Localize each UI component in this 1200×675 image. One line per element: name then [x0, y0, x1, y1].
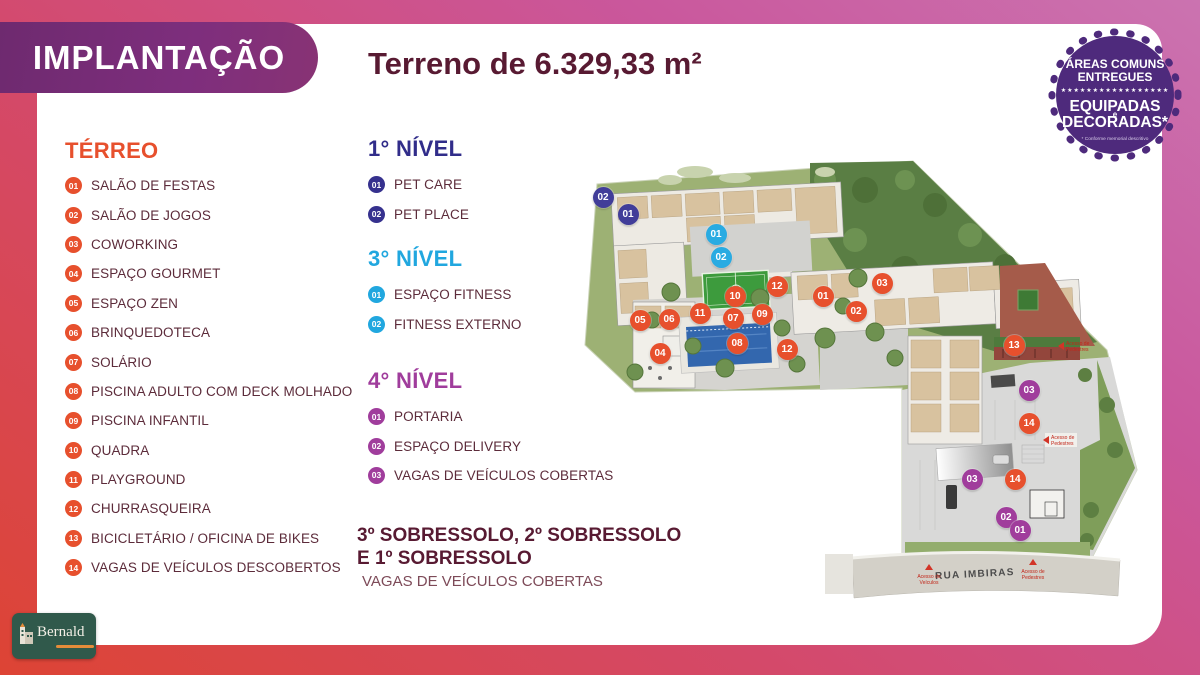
plan-marker-terreo-08: 08: [727, 333, 748, 354]
item-number-badge: 03: [368, 467, 385, 484]
seal-stars-icon: ★★★★★★★★★★★★★★★★★: [1061, 87, 1169, 94]
item-label: VAGAS DE VEÍCULOS COBERTAS: [394, 468, 613, 483]
item-label: PORTARIA: [394, 409, 463, 424]
item-label: ESPAÇO DELIVERY: [394, 439, 521, 454]
legend-item: 04ESPAÇO GOURMET: [65, 259, 352, 288]
sobressolo-title: 3º SOBRESSOLO, 2º SOBRESSOLO E 1º SOBRES…: [357, 524, 681, 570]
plan-marker-terreo-13: 13: [1004, 335, 1025, 356]
item-label: BICICLETÁRIO / OFICINA DE BIKES: [91, 531, 319, 546]
plan-marker-terreo-04: 04: [650, 343, 671, 364]
legend-item: 01ESPAÇO FITNESS: [368, 280, 522, 309]
sobressolo-title-line2: E 1º SOBRESSOLO: [357, 547, 681, 570]
legend-nivel4-title: 4° NÍVEL: [368, 368, 613, 394]
item-number-badge: 01: [368, 286, 385, 303]
plan-marker-terreo-03: 03: [872, 273, 893, 294]
sobressolo-note: VAGAS DE VEÍCULOS COBERTAS: [362, 573, 603, 590]
item-number-badge: 12: [65, 500, 82, 517]
legend-item: 09PISCINA INFANTIL: [65, 406, 352, 435]
plan-marker-terreo-05: 05: [630, 310, 651, 331]
plan-markers-layer: 0201010212100301021109070506080412130314…: [575, 150, 1140, 647]
brand-tagline: [56, 645, 94, 648]
legend-item: 14VAGAS DE VEÍCULOS DESCOBERTOS: [65, 553, 352, 582]
plan-marker-terreo-14: 14: [1005, 469, 1026, 490]
legend-item: 02FITNESS EXTERNO: [368, 309, 522, 338]
seal-line2: ENTREGUES: [1078, 70, 1153, 84]
item-number-badge: 08: [65, 383, 82, 400]
item-label: VAGAS DE VEÍCULOS DESCOBERTOS: [91, 560, 341, 575]
item-label: QUADRA: [91, 443, 149, 458]
brand-name: Bernald: [37, 624, 84, 641]
item-label: PLAYGROUND: [91, 472, 186, 487]
plan-marker-terreo-01: 01: [813, 286, 834, 307]
legend-terreo-title: TÉRREO: [65, 138, 352, 164]
plan-marker-terreo-09: 09: [752, 304, 773, 325]
brand-logo: Bernald: [12, 613, 96, 659]
legend-nivel3-title: 3° NÍVEL: [368, 246, 522, 272]
item-label: FITNESS EXTERNO: [394, 317, 522, 332]
plan-marker-nivel3-02: 02: [711, 247, 732, 268]
legend-nivel1-title: 1° NÍVEL: [368, 136, 469, 162]
legend-item: 01PORTARIA: [368, 402, 613, 431]
item-number-badge: 10: [65, 442, 82, 459]
legend-nivel4: 4° NÍVEL 01PORTARIA 02ESPAÇO DELIVERY 03…: [368, 368, 613, 490]
site-plan: RUA IMBIRAS Acesso de Veículos Acesso de…: [575, 150, 1140, 647]
page-background: RUA IMBIRAS Acesso de Veículos Acesso de…: [0, 0, 1200, 675]
legend-item: 02ESPAÇO DELIVERY: [368, 431, 613, 460]
item-label: ESPAÇO GOURMET: [91, 266, 220, 281]
item-label: BRINQUEDOTECA: [91, 325, 210, 340]
plan-marker-terreo-10: 10: [725, 286, 746, 307]
item-number-badge: 01: [65, 177, 82, 194]
plan-marker-nivel3-01: 01: [706, 224, 727, 245]
seal-line4: DECORADAS*: [1062, 114, 1169, 131]
item-number-badge: 14: [65, 559, 82, 576]
sobressolo-title-line1: 3º SOBRESSOLO, 2º SOBRESSOLO: [357, 524, 681, 547]
item-label: PET CARE: [394, 177, 462, 192]
item-number-badge: 01: [368, 408, 385, 425]
plan-marker-nivel4-03: 03: [962, 469, 983, 490]
seal-footnote: * Conforme memorial descritivo: [1082, 136, 1149, 142]
item-number-badge: 02: [368, 438, 385, 455]
item-number-badge: 07: [65, 354, 82, 371]
item-label: PISCINA INFANTIL: [91, 413, 209, 428]
item-number-badge: 13: [65, 530, 82, 547]
plan-marker-nivel4-01: 01: [1010, 520, 1031, 541]
item-number-badge: 02: [368, 316, 385, 333]
legend-item: 06BRINQUEDOTECA: [65, 318, 352, 347]
item-number-badge: 05: [65, 295, 82, 312]
legend-nivel1: 1° NÍVEL 01PET CARE 02PET PLACE: [368, 136, 469, 229]
plan-marker-terreo-11: 11: [690, 303, 711, 324]
plan-marker-terreo-12: 12: [767, 276, 788, 297]
legend-item: 05ESPAÇO ZEN: [65, 289, 352, 318]
legend-item: 01PET CARE: [368, 170, 469, 199]
legend-item: 01SALÃO DE FESTAS: [65, 171, 352, 200]
section-badge-label: IMPLANTAÇÃO: [33, 39, 285, 77]
item-number-badge: 11: [65, 471, 82, 488]
item-number-badge: 09: [65, 412, 82, 429]
section-badge: IMPLANTAÇÃO: [0, 22, 318, 93]
item-label: SALÃO DE FESTAS: [91, 178, 215, 193]
plan-marker-nivel4-03: 03: [1019, 380, 1040, 401]
item-label: COWORKING: [91, 237, 178, 252]
plan-marker-terreo-12: 12: [777, 339, 798, 360]
item-label: ESPAÇO FITNESS: [394, 287, 511, 302]
plan-marker-terreo-06: 06: [659, 309, 680, 330]
building-icon: [19, 623, 35, 645]
legend-item: 02PET PLACE: [368, 199, 469, 228]
item-label: SALÃO DE JOGOS: [91, 208, 211, 223]
legend-item: 13BICICLETÁRIO / OFICINA DE BIKES: [65, 524, 352, 553]
item-label: CHURRASQUEIRA: [91, 501, 211, 516]
plan-marker-terreo-02: 02: [846, 301, 867, 322]
legend-item: 03VAGAS DE VEÍCULOS COBERTAS: [368, 461, 613, 490]
legend-item: 07SOLÁRIO: [65, 347, 352, 376]
item-number-badge: 02: [368, 206, 385, 223]
item-label: PISCINA ADULTO COM DECK MOLHADO: [91, 384, 352, 399]
item-number-badge: 01: [368, 176, 385, 193]
item-label: PET PLACE: [394, 207, 469, 222]
plan-marker-terreo-14: 14: [1019, 413, 1040, 434]
delivery-seal: ÁREAS COMUNS ENTREGUES ★★★★★★★★★★★★★★★★★…: [1040, 20, 1190, 170]
plan-marker-nivel1-02: 02: [593, 187, 614, 208]
legend-item: 10QUADRA: [65, 436, 352, 465]
plan-marker-nivel1-01: 01: [618, 204, 639, 225]
seal-line1: ÁREAS COMUNS: [1066, 56, 1165, 71]
legend-item: 03COWORKING: [65, 230, 352, 259]
legend-nivel3: 3° NÍVEL 01ESPAÇO FITNESS 02FITNESS EXTE…: [368, 246, 522, 339]
legend-item: 08PISCINA ADULTO COM DECK MOLHADO: [65, 377, 352, 406]
item-number-badge: 04: [65, 265, 82, 282]
item-number-badge: 03: [65, 236, 82, 253]
plan-marker-terreo-07: 07: [723, 308, 744, 329]
item-number-badge: 06: [65, 324, 82, 341]
item-label: ESPAÇO ZEN: [91, 296, 178, 311]
legend-item: 11PLAYGROUND: [65, 465, 352, 494]
legend-terreo: TÉRREO 01SALÃO DE FESTAS 02SALÃO DE JOGO…: [65, 138, 352, 582]
legend-item: 02SALÃO DE JOGOS: [65, 200, 352, 229]
item-label: SOLÁRIO: [91, 355, 152, 370]
terrain-title: Terreno de 6.329,33 m²: [368, 46, 702, 82]
item-number-badge: 02: [65, 207, 82, 224]
legend-item: 12CHURRASQUEIRA: [65, 494, 352, 523]
